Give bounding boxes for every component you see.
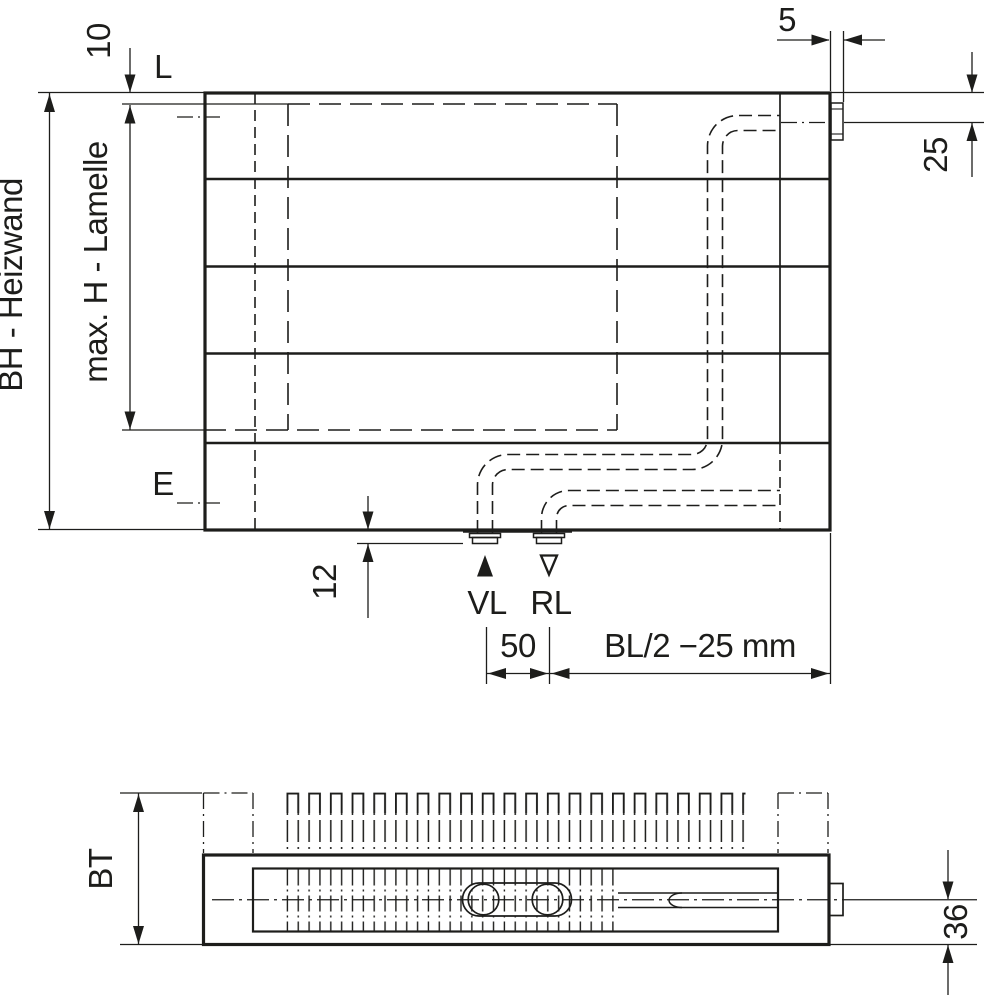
return-label: RL [530, 584, 571, 621]
dim-bh-label: BH - Heizwand [0, 178, 29, 392]
left-end-bracket-hidden [204, 793, 254, 853]
radiator-body-outline [205, 93, 830, 530]
dim-bt-label: BT [82, 848, 119, 890]
dim-bl2-label: BL/2 −25 mm [604, 627, 796, 664]
return-stub [534, 534, 565, 544]
supply-stub [470, 534, 501, 544]
dim-12-label: 12 [306, 564, 343, 600]
dim-10: 10 [80, 23, 136, 92]
dim-25-label: 25 [917, 137, 954, 173]
dim-10-label: 10 [80, 23, 117, 59]
lamella-lines [205, 179, 830, 443]
drawing-svg: VL RL BH - Heizwand max. H - Lamelle 10 … [0, 0, 1000, 1000]
dim-50-label: 50 [500, 627, 536, 664]
return-pipe-outer [542, 491, 781, 534]
dim-36-label: 36 [937, 904, 974, 940]
dim-max-h-label: max. H - Lamelle [77, 141, 114, 382]
front-view: VL RL BH - Heizwand max. H - Lamelle 10 … [0, 1, 984, 684]
right-end-bracket-hidden [778, 793, 828, 853]
supply-label: VL [467, 584, 507, 621]
return-direction-icon [541, 556, 557, 575]
dim-max-h: max. H - Lamelle [77, 105, 136, 430]
dim-36: 36 [830, 850, 977, 995]
fin-comb [287, 792, 746, 856]
side-connection-stub [781, 103, 984, 140]
dim-bt: BT [82, 793, 202, 945]
radiator-technical-drawing: VL RL BH - Heizwand max. H - Lamelle 10 … [0, 0, 1000, 1000]
dim-25: 25 [831, 52, 984, 177]
level-label-e: E [152, 465, 174, 502]
hidden-lamella-zone [122, 93, 617, 530]
bottom-connections: VL RL [463, 532, 572, 621]
top-view: BT 36 [82, 792, 977, 995]
dim-5-label: 5 [778, 1, 796, 38]
supply-pipe-inner [493, 131, 781, 534]
dim-12: 12 [306, 496, 463, 618]
level-label-l: L [154, 48, 172, 85]
dim-5: 5 [777, 1, 885, 102]
supply-direction-icon [477, 555, 493, 577]
